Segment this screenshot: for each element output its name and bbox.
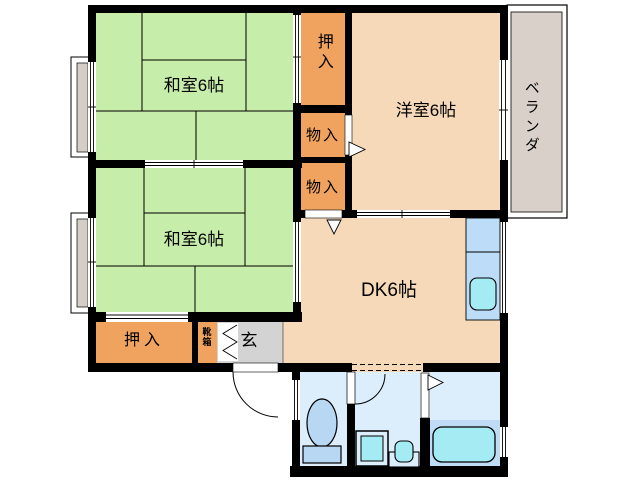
genkan-label: 玄 — [234, 332, 264, 350]
kutsubako-label: 靴箱 — [201, 327, 210, 363]
washing-machine-icon — [356, 431, 388, 466]
veranda-sliding-door — [499, 60, 508, 160]
monoire1-label: 物入 — [301, 128, 345, 144]
corridor — [283, 322, 302, 363]
bathtub-icon — [433, 427, 495, 462]
bath-window — [500, 427, 508, 457]
toilet-window — [292, 380, 300, 420]
oshiire-top-label: 押入 — [314, 33, 331, 93]
toilet-door-leaf — [347, 372, 355, 404]
monoire2-door-leaf — [305, 210, 342, 218]
sliding-door-washitsu1-washitsu2 — [145, 160, 243, 168]
yoshitsu-label: 洋室6帖 — [356, 102, 496, 120]
floor-plan: 和室6帖 和室6帖 洋室6帖 DK6帖 押入 物入 物入 押入 靴箱 玄 ベラン… — [0, 0, 638, 480]
dk-label: DK6帖 — [328, 281, 450, 301]
washitsu1-label: 和室6帖 — [124, 77, 264, 95]
sliding-door-oshiire-top — [293, 15, 301, 103]
kitchen-unit — [466, 218, 500, 320]
window-bay-top — [88, 62, 96, 152]
kitchen-window — [500, 222, 508, 313]
sliding-door-yoshitsu-dk — [357, 210, 450, 218]
monoire2-label: 物入 — [301, 180, 345, 196]
washitsu2-label: 和室6帖 — [124, 231, 264, 249]
sliding-door-washitsu2-dk — [293, 222, 301, 302]
window-bay-bottom — [88, 218, 96, 307]
sliding-door-oshiire-bottom — [106, 312, 188, 322]
entrance-door-leaf — [233, 363, 278, 372]
entrance-door-swing-arc — [233, 372, 278, 417]
kitchen-sink-icon — [470, 278, 496, 310]
veranda-label: ベランダ — [523, 80, 539, 218]
oshiire-bottom-label: 押入 — [96, 333, 192, 350]
